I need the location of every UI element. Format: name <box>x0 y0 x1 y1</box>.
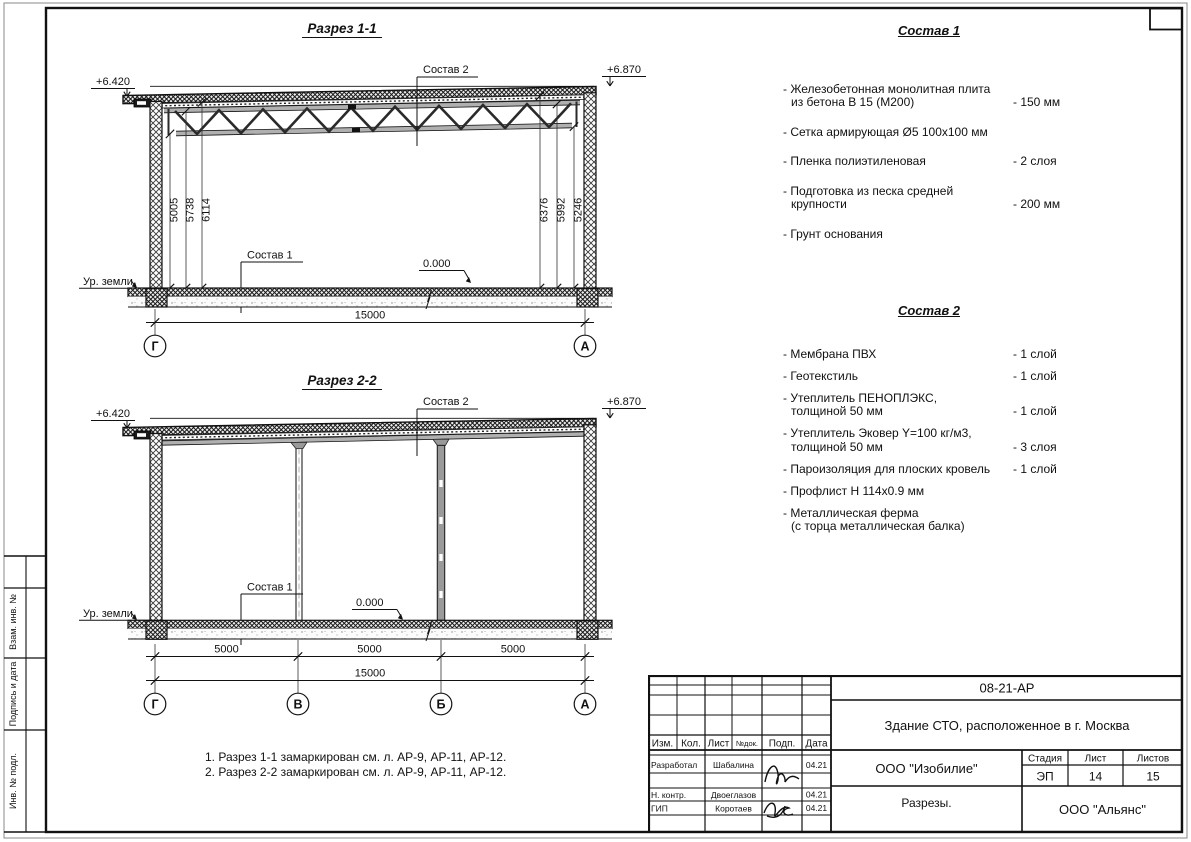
role-nkontr: Н. контр. <box>651 790 686 800</box>
col-kol: Кол. <box>681 739 701 750</box>
layer-name: - Утеплитель Эковер Y=100 кг/м3, <box>783 427 972 441</box>
layer-value: - 1 слой <box>1013 405 1075 419</box>
axis-letter: Б <box>437 698 446 712</box>
layer-name: - Грунт основания <box>783 228 883 242</box>
elevation-mark-right: +6.870 <box>602 396 646 418</box>
layer-name-2: (с торца металлическая балка) <box>783 520 965 534</box>
section-1-1-drawing: Разрез 1-1 +6.420 +6.870 <box>79 21 646 357</box>
title-block: 08-21-АР Здание СТО, расположенное в г. … <box>648 675 1183 833</box>
layer-item: - Подготовка из песка средней крупности … <box>783 185 1075 212</box>
layer-name: - Мембрана ПВХ <box>783 348 876 362</box>
layer-name-2: толщиной 50 мм <box>783 441 972 455</box>
foundation-right <box>577 289 598 308</box>
dim-height: 5005 <box>169 198 181 222</box>
col-ndok: №док. <box>736 739 758 748</box>
wall-left <box>150 434 162 621</box>
layer-value: - 2 слоя <box>1013 155 1075 169</box>
elevation-mark-left: +6.420 <box>91 408 135 428</box>
sheet-title: Разрезы. <box>901 796 951 810</box>
date-1: 04.21 <box>806 760 828 770</box>
name-dvoeglazov: Двоеглазов <box>711 790 757 800</box>
layer-value: - 150 мм <box>1013 96 1075 110</box>
arrowhead-icon <box>398 614 403 620</box>
dim-height: 6114 <box>201 198 213 222</box>
sheet-label: Лист <box>1085 754 1107 765</box>
arrowhead-icon <box>466 277 471 283</box>
layer-name-2: толщиной 50 мм <box>783 405 937 419</box>
stage-value: ЭП <box>1036 770 1053 784</box>
layer-item: - Утеплитель Эковер Y=100 кг/м3, толщино… <box>783 427 1075 454</box>
zero-level-mark: 0.000 <box>419 258 471 283</box>
dim-bay: 5000 <box>357 644 381 656</box>
role-gip: ГИП <box>651 804 668 814</box>
company-name: ООО "Изобилие" <box>875 761 978 776</box>
col-podp: Подп. <box>769 739 796 750</box>
sheets-value: 15 <box>1146 770 1160 784</box>
signature-rows: Разработал Шабалина 04.21 Н. контр. Двое… <box>651 760 827 817</box>
layer-item: - Пароизоляция для плоских кровель - 1 с… <box>783 463 1075 477</box>
doc-number: 08-21-АР <box>980 681 1035 696</box>
side-label-vzam: Взам. инв. № <box>8 594 18 650</box>
ground-level-mark: Ур. земли <box>79 276 150 288</box>
contractor-name: ООО "Альянс" <box>1059 802 1146 817</box>
ground-label: Ур. земли <box>83 608 133 620</box>
section-2-2-title: Разрез 2-2 <box>307 373 377 388</box>
side-label-podpis: Подпись и дата <box>8 662 18 727</box>
project-title: Здание СТО, расположенное в г. Москва <box>885 718 1131 733</box>
axis-letter: А <box>580 340 589 354</box>
note-line: 1. Разрез 1-1 замаркирован см. л. АР-9, … <box>205 750 506 765</box>
roof-slab <box>123 418 596 445</box>
dim-height: 5738 <box>185 198 197 222</box>
layer-value: - 1 слой <box>1013 463 1075 477</box>
layer-name: - Пароизоляция для плоских кровель <box>783 463 990 477</box>
frame-side-column: Взам. инв. № Подпись и дата Инв. № подл. <box>4 556 46 832</box>
dim-bay: 5000 <box>501 644 525 656</box>
sostav1-label: Состав 1 <box>247 582 293 594</box>
layer-name: - Профлист Н 114х0.9 мм <box>783 485 924 499</box>
layer-value: - 1 слой <box>1013 348 1075 362</box>
dim-height: 5992 <box>556 198 568 222</box>
elevation-value: +6.870 <box>607 396 641 408</box>
axis-letter: В <box>293 698 302 712</box>
ground-level-mark: Ур. земли <box>79 608 150 620</box>
wall-left <box>150 102 162 290</box>
layer-item: - Профлист Н 114х0.9 мм <box>783 485 1075 499</box>
elevation-mark-left: +6.420 <box>91 76 135 97</box>
col-izm: Изм. <box>652 739 673 750</box>
elevation-value: +6.420 <box>96 408 130 420</box>
layer-name-2: крупности <box>783 198 953 212</box>
corner-doc-cell <box>1150 9 1182 30</box>
axis-markers: Г В Б А <box>144 693 596 715</box>
dim-bay: 5000 <box>214 644 238 656</box>
dim-total: 15000 <box>355 668 386 680</box>
layer-name: - Утеплитель ПЕНОПЛЭКС, <box>783 392 937 406</box>
layer-name: - Металлическая ферма <box>783 507 965 521</box>
bay-dimensions: 5000 5000 5000 15000 <box>146 640 594 693</box>
col-data: Дата <box>805 739 828 750</box>
section-2-2-drawing: Разрез 2-2 +6.420 +6.870 <box>79 373 646 715</box>
layer-item: - Металлическая ферма (с торца металличе… <box>783 507 1075 534</box>
sostav2-label: Состав 2 <box>423 64 469 76</box>
layer-item: - Железобетонная монолитная плита из бет… <box>783 83 1075 110</box>
zero-level-value: 0.000 <box>356 597 384 609</box>
overall-dimension: 15000 <box>146 309 594 335</box>
layer-name: - Железобетонная монолитная плита <box>783 83 990 97</box>
dim-height: 5246 <box>573 198 585 222</box>
layer-value: - 200 мм <box>1013 198 1075 212</box>
layer-item: - Пленка полиэтиленовая - 2 слоя <box>783 155 1075 169</box>
col-list: Лист <box>708 739 730 750</box>
sheets-label: Листов <box>1137 754 1170 765</box>
layer-value: - 1 слой <box>1013 370 1075 384</box>
section-1-1-title: Разрез 1-1 <box>307 21 376 36</box>
foundation-right <box>577 621 598 640</box>
name-korotaev: Коротаев <box>715 804 752 814</box>
sostav2-list: Состав 2 - Мембрана ПВХ - 1 слой - Геоте… <box>783 304 1075 542</box>
stage-sheet-cells: Стадия Лист Листов ЭП 14 15 <box>1028 754 1169 784</box>
notes-block: 1. Разрез 1-1 замаркирован см. л. АР-9, … <box>205 750 506 780</box>
sostav2-label: Состав 2 <box>423 396 469 408</box>
layer-name: - Подготовка из песка средней <box>783 185 953 199</box>
zero-level-value: 0.000 <box>423 258 451 270</box>
wall-right <box>584 93 596 289</box>
layer-name-2: из бетона В 15 (М200) <box>783 96 990 110</box>
dim-height: 6376 <box>539 198 551 222</box>
date-3: 04.21 <box>806 803 828 813</box>
signature-1 <box>765 766 799 784</box>
layer-name: - Сетка армирующая Ø5 100х100 мм <box>783 126 988 140</box>
layer-name: - Геотекстиль <box>783 370 858 384</box>
layer-item: - Мембрана ПВХ - 1 слой <box>783 348 1075 362</box>
ground-label: Ур. земли <box>83 276 133 288</box>
axis-letter: Г <box>151 698 158 712</box>
layer-item: - Сетка армирующая Ø5 100х100 мм <box>783 126 1075 140</box>
layer-item: - Утеплитель ПЕНОПЛЭКС, толщиной 50 мм -… <box>783 392 1075 419</box>
note-line: 2. Разрез 2-2 замаркирован см. л. АР-9, … <box>205 765 506 780</box>
sostav1-title: Состав 1 <box>783 24 1075 38</box>
column-axis-b <box>433 439 449 620</box>
sheet-value: 14 <box>1089 770 1103 784</box>
sostav1-label: Состав 1 <box>247 250 293 262</box>
floor-slab <box>128 288 612 309</box>
axis-letter: Г <box>151 340 158 354</box>
role-razrabotal: Разработал <box>651 760 697 770</box>
column-axis-v <box>291 442 307 620</box>
axis-markers: Г А <box>144 335 596 357</box>
sostav2-title: Состав 2 <box>783 304 1075 318</box>
floor-slab <box>128 620 612 641</box>
zero-level-mark: 0.000 <box>352 597 403 620</box>
elevation-value: +6.420 <box>96 76 130 88</box>
foundation-left <box>146 289 167 308</box>
axis-letter: А <box>580 698 589 712</box>
side-label-inv: Инв. № подл. <box>8 753 18 809</box>
wall-right <box>584 425 596 621</box>
drawing-sheet: Взам. инв. № Подпись и дата Инв. № подл.… <box>0 0 1191 842</box>
elevation-mark-right: +6.870 <box>602 64 646 86</box>
layer-value: - 3 слоя <box>1013 441 1075 455</box>
sostav1-list: Состав 1 - Железобетонная монолитная пли… <box>783 24 1075 257</box>
dim-total: 15000 <box>355 310 386 322</box>
foundation-left <box>146 621 167 640</box>
stage-label: Стадия <box>1028 754 1062 765</box>
layer-item: - Геотекстиль - 1 слой <box>783 370 1075 384</box>
layer-item: - Грунт основания <box>783 228 1075 242</box>
elevation-value: +6.870 <box>607 64 641 76</box>
name-shabalina: Шабалина <box>713 760 754 770</box>
layer-name: - Пленка полиэтиленовая <box>783 155 926 169</box>
date-2: 04.21 <box>806 790 828 800</box>
